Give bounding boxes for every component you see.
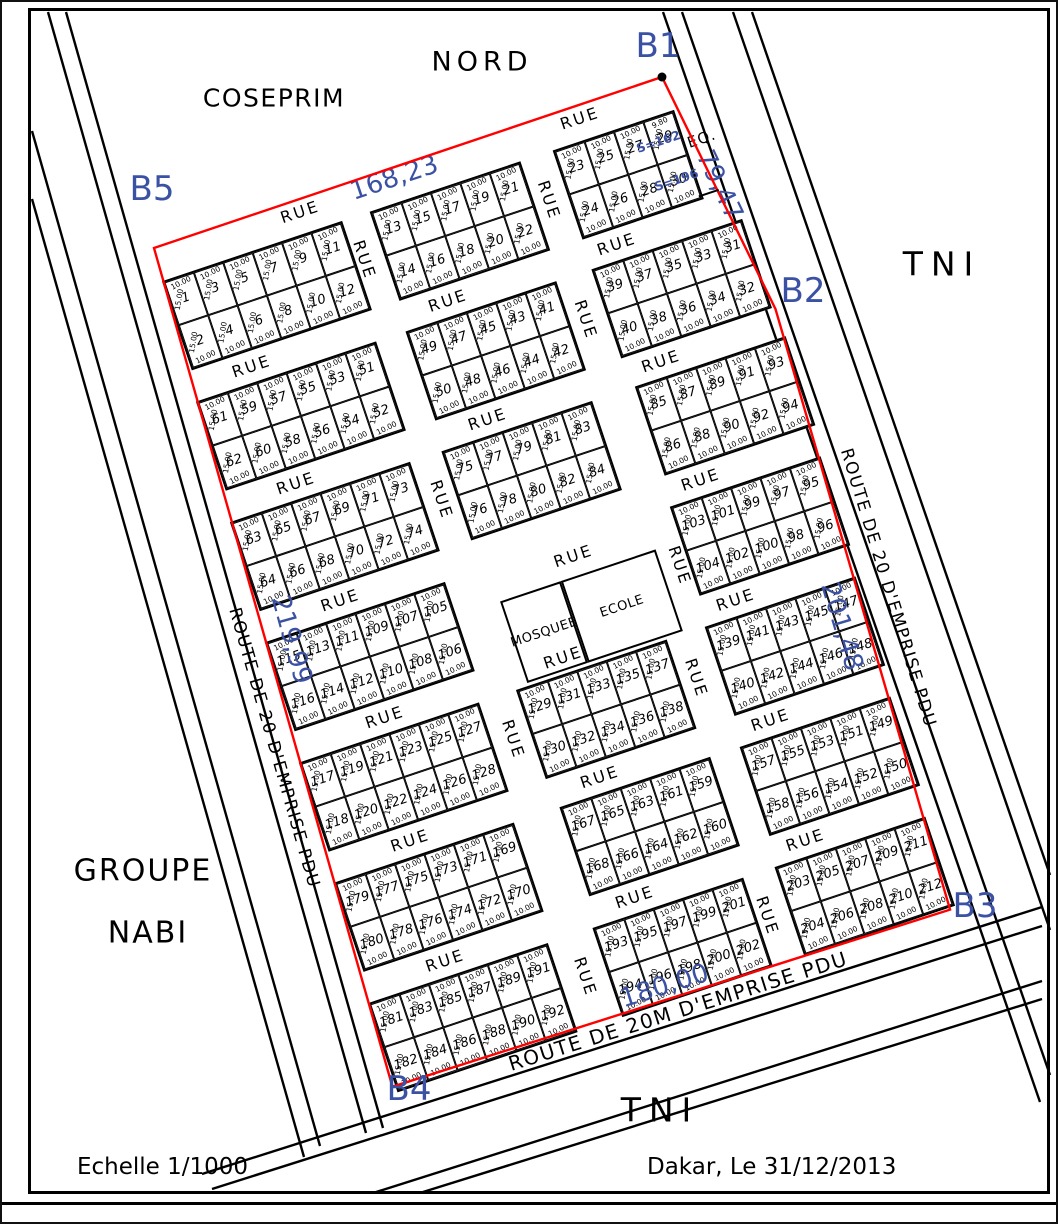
lot-depth-dim: 15.00 <box>770 484 781 507</box>
lot-depth-dim: 15.00 <box>470 189 481 212</box>
lot-depth-dim: 15.00 <box>644 837 655 860</box>
lot-depth-dim: 15.00 <box>571 814 582 837</box>
lot-depth-dim: 15.00 <box>404 870 415 893</box>
lot-depth-dim: 15.00 <box>691 247 702 270</box>
lot-depth-dim: 15.00 <box>647 394 658 417</box>
lot-depth-dim: 15.00 <box>630 795 641 818</box>
lot-depth-dim: 15.00 <box>696 557 707 580</box>
lot-depth-dim: 15.00 <box>781 744 792 767</box>
lot-depth-dim: 15.00 <box>786 874 797 897</box>
lot-depth-dim: 15.00 <box>256 572 267 595</box>
lot-depth-dim: 15.00 <box>468 981 479 1004</box>
lot-depth-dim: 15.00 <box>617 319 628 342</box>
lot-depth-dim: 15.00 <box>735 364 746 387</box>
lot-depth-dim: 15.00 <box>354 803 365 826</box>
lot-depth-dim: 15.00 <box>810 734 821 757</box>
frame-bottom-line <box>2 1202 1058 1205</box>
lot-depth-dim: 15.00 <box>731 677 742 700</box>
lot-depth-dim: 15.00 <box>511 1014 522 1037</box>
lot-depth-dim: 15.00 <box>482 1024 493 1047</box>
lot-depth-dim: 15.00 <box>676 299 687 322</box>
lot-depth-dim: 15.00 <box>542 740 553 763</box>
lot-depth-dim: 15.00 <box>645 658 656 681</box>
lot-depth-dim: 15.00 <box>285 562 296 585</box>
lot-depth-dim: 15.00 <box>266 389 277 412</box>
lot-depth-dim: 15.00 <box>736 939 747 962</box>
lot-depth-dim: 15.00 <box>790 657 801 680</box>
lot-depth-dim: 15.00 <box>484 232 495 255</box>
lot-depth-dim: 15.00 <box>541 1004 552 1027</box>
lot-depth-dim: 15.00 <box>271 519 282 542</box>
lot-depth-dim: 15.00 <box>615 847 626 870</box>
lot-depth-dim: 15.00 <box>425 252 436 275</box>
lot-depth-dim: 15.00 <box>616 668 627 691</box>
lot-depth-dim: 15.00 <box>379 1010 390 1033</box>
lot-depth-dim: 15.00 <box>647 309 658 332</box>
lot-depth-dim: 15.00 <box>384 793 395 816</box>
lot-depth-dim: 15.00 <box>571 419 582 442</box>
lot-depth-dim: 15.00 <box>764 354 775 377</box>
lot-depth-dim: 15.00 <box>394 1053 405 1076</box>
lot-depth-dim: 15.00 <box>682 514 693 537</box>
lot-depth-dim: 15.00 <box>222 451 233 474</box>
lot-depth-dim: 15.00 <box>660 700 671 723</box>
lot-depth-dim: 15.00 <box>766 797 777 820</box>
lot-depth-dim: 15.00 <box>594 148 605 171</box>
lot-depth-dim: 15.00 <box>247 311 258 334</box>
lot-depth-dim: 15.00 <box>689 775 700 798</box>
lot-depth-dim: 15.00 <box>447 329 458 352</box>
lot-depth-dim: 15.00 <box>345 890 356 913</box>
lot-depth-dim: 15.00 <box>321 239 332 262</box>
lot-depth-dim: 15.00 <box>676 384 687 407</box>
lot-depth-dim: 15.00 <box>799 475 810 498</box>
lot-depth-dim: 15.00 <box>690 427 701 450</box>
lot-depth-dim: 15.00 <box>819 647 830 670</box>
lot-depth-dim: 15.00 <box>634 925 645 948</box>
lot-depth-dim: 15.00 <box>805 604 816 627</box>
lot-depth-dim: 15.00 <box>579 200 590 223</box>
lot-depth-dim: 15.00 <box>417 339 428 362</box>
lot-depth-dim: 15.00 <box>637 181 648 204</box>
lot-depth-dim: 15.00 <box>340 412 351 435</box>
lot-depth-dim: 15.00 <box>330 500 341 523</box>
lot-depth-dim: 15.00 <box>661 436 672 459</box>
lot-depth-dim: 15.00 <box>442 773 453 796</box>
lot-depth-dim: 15.00 <box>359 490 370 513</box>
lot-depth-dim: 15.00 <box>440 199 451 222</box>
lot-depth-dim: 15.00 <box>499 180 510 203</box>
lot-depth-dim: 15.00 <box>325 369 336 392</box>
lot-depth-dim: 15.00 <box>722 896 733 919</box>
lot-depth-dim: 15.00 <box>233 269 244 292</box>
lot-depth-dim: 15.00 <box>291 249 302 272</box>
lot-depth-dim: 15.00 <box>492 841 503 864</box>
lot-depth-dim: 15.00 <box>692 906 703 929</box>
lot-depth-dim: 15.00 <box>725 547 736 570</box>
lot-depth-dim: 15.00 <box>528 697 539 720</box>
lot-depth-dim: 15.00 <box>458 721 469 744</box>
lot-depth-dim: 15.00 <box>706 290 717 313</box>
lot-depth-dim: 15.00 <box>601 720 612 743</box>
lot-depth-dim: 15.00 <box>291 692 302 715</box>
lot-depth-dim: 15.00 <box>889 887 900 910</box>
plan-sheet: 110.0015.00310.0015.00510.0015.00710.001… <box>0 0 1058 1224</box>
lot-depth-dim: 15.00 <box>507 883 518 906</box>
lot-depth-dim: 15.00 <box>497 491 508 514</box>
lot-depth-dim: 15.00 <box>453 1033 464 1056</box>
lot-depth-dim: 15.00 <box>564 158 575 181</box>
lot-depth-dim: 15.00 <box>840 725 851 748</box>
lot-depth-dim: 15.00 <box>795 787 806 810</box>
lot-depth-dim: 15.00 <box>251 442 262 465</box>
lot-depth-dim: 15.00 <box>749 407 760 430</box>
lot-depth-dim: 15.00 <box>526 961 537 984</box>
lot-depth-dim: 15.00 <box>477 893 488 916</box>
lot-depth-dim: 15.00 <box>541 429 552 452</box>
lot-depth-dim: 15.00 <box>587 677 598 700</box>
lot-depth-dim: 15.00 <box>396 262 407 285</box>
lot-depth-dim: 15.00 <box>813 517 824 540</box>
lot-depth-dim: 15.00 <box>409 1001 420 1024</box>
lot-depth-dim: 15.00 <box>904 835 915 858</box>
lot-depth-dim: 15.00 <box>335 282 346 305</box>
lot-depth-dim: 15.00 <box>760 667 771 690</box>
lot-depth-dim: 15.00 <box>389 923 400 946</box>
lot-depth-dim: 15.00 <box>413 783 424 806</box>
lot-depth-dim: 15.00 <box>874 845 885 868</box>
lot-depth-dim: 15.00 <box>845 855 856 878</box>
lot-depth-dim: 15.00 <box>623 138 634 161</box>
lot-depth-dim: 15.00 <box>608 190 619 213</box>
lot-depth-dim: 15.00 <box>310 422 321 445</box>
lot-depth-dim: 15.00 <box>374 533 385 556</box>
lot-depth-dim: 15.00 <box>755 537 766 560</box>
lot-depth-dim: 15.00 <box>585 462 596 485</box>
lot-depth-dim: 15.00 <box>174 288 185 311</box>
lot-depth-dim: 15.00 <box>399 740 410 763</box>
lot-depth-dim: 15.00 <box>703 818 714 841</box>
lot-depth-dim: 15.00 <box>300 510 311 533</box>
lot-depth-dim: 15.00 <box>320 682 331 705</box>
lot-depth-dim: 15.00 <box>505 309 516 332</box>
lot-depth-dim: 15.00 <box>315 552 326 575</box>
lot-depth-dim: 15.00 <box>603 276 614 299</box>
lot-depth-dim: 15.00 <box>674 828 685 851</box>
lot-depth-dim: 15.00 <box>630 710 641 733</box>
lot-depth-dim: 15.00 <box>663 915 674 938</box>
lot-depth-dim: 15.00 <box>434 860 445 883</box>
lot-depth-dim: 15.00 <box>217 321 228 344</box>
lot-depth-dim: 15.00 <box>557 687 568 710</box>
lot-depth-dim: 15.00 <box>208 409 219 432</box>
lot-depth-dim: 15.00 <box>203 279 214 302</box>
lot-depth-dim: 15.00 <box>859 897 870 920</box>
lot-depth-dim: 15.00 <box>381 219 392 242</box>
lot-depth-dim: 15.00 <box>476 319 487 342</box>
lot-depth-dim: 15.00 <box>369 750 380 773</box>
lot-depth-dim: 15.00 <box>281 432 292 455</box>
lot-depth-dim: 15.00 <box>242 529 253 552</box>
lot-depth-dim: 15.00 <box>438 991 449 1014</box>
lot-depth-dim: 15.00 <box>883 757 894 780</box>
lot-depth-dim: 15.00 <box>535 299 546 322</box>
lot-depth-dim: 15.00 <box>824 777 835 800</box>
lot-depth-dim: 15.00 <box>335 630 346 653</box>
lot-depth-dim: 15.00 <box>448 903 459 926</box>
lot-depth-dim: 15.00 <box>716 634 727 657</box>
lot-depth-dim: 15.00 <box>556 472 567 495</box>
lot-depth-dim: 15.00 <box>454 242 465 265</box>
lot-depth-dim: 15.00 <box>461 372 472 395</box>
lot-depth-dim: 15.00 <box>188 331 199 354</box>
lot-depth-dim: 15.00 <box>751 754 762 777</box>
lot-depth-dim: 15.00 <box>325 812 336 835</box>
lot-depth-dim: 15.00 <box>311 770 322 793</box>
lot-depth-dim: 15.00 <box>340 760 351 783</box>
lot-depth-dim: 15.00 <box>720 417 731 440</box>
lot-depth-dim: 15.00 <box>428 730 439 753</box>
lot-depth-dim: 15.00 <box>296 379 307 402</box>
lot-depth-dim: 15.00 <box>423 1043 434 1066</box>
lot-depth-dim: 15.00 <box>775 614 786 637</box>
lot-depth-dim: 15.00 <box>472 763 483 786</box>
lot-depth-dim: 15.00 <box>424 600 435 623</box>
lot-depth-dim: 15.00 <box>411 209 422 232</box>
lot-depth-dim: 15.00 <box>659 785 670 808</box>
lot-depth-dim: 15.00 <box>601 805 612 828</box>
lot-depth-dim: 15.00 <box>918 878 929 901</box>
lot-depth-dim: 15.00 <box>467 501 478 524</box>
lot-depth-dim: 15.00 <box>735 280 746 303</box>
lot-depth-dim: 15.00 <box>453 458 464 481</box>
lot-depth-dim: 15.00 <box>869 715 880 738</box>
lot-depth-dim: 15.00 <box>705 374 716 397</box>
lot-depth-dim: 15.00 <box>379 663 390 686</box>
lot-depth-dim: 15.00 <box>369 402 380 425</box>
lot-depth-dim: 15.00 <box>816 864 827 887</box>
lot-depth-dim: 15.00 <box>513 222 524 245</box>
lot-depth-dim: 15.00 <box>830 907 841 930</box>
lot-depth-dim: 15.00 <box>262 259 273 282</box>
lot-depth-dim: 15.00 <box>365 620 376 643</box>
lot-depth-dim: 15.00 <box>344 542 355 565</box>
lot-depth-dim: 15.00 <box>438 643 449 666</box>
lot-depth-dim: 15.00 <box>801 917 812 940</box>
lot-depth-dim: 15.00 <box>662 257 673 280</box>
lot-depth-dim: 15.00 <box>306 292 317 315</box>
lot-depth-dim: 15.00 <box>707 948 718 971</box>
lot-depth-dim: 15.00 <box>497 971 508 994</box>
lot-depth-dim: 15.00 <box>778 397 789 420</box>
lot-depth-dim: 15.00 <box>432 381 443 404</box>
lot-depth-dim: 15.00 <box>276 302 287 325</box>
lot-depth-dim: 15.00 <box>585 857 596 880</box>
lot-depth-dim: 15.00 <box>854 767 865 790</box>
lot-depth-dim: 15.00 <box>350 672 361 695</box>
lot-depth-dim: 15.00 <box>408 653 419 676</box>
lot-depth-dim: 15.00 <box>604 935 615 958</box>
lot-depth-dim: 15.00 <box>463 851 474 874</box>
lot-depth-dim: 15.00 <box>483 449 494 472</box>
lot-depth-dim: 15.00 <box>490 362 501 385</box>
lot-depth-dim: 15.00 <box>571 730 582 753</box>
lot-depth-dim: 15.00 <box>237 399 248 422</box>
lot-depth-dim: 15.00 <box>784 527 795 550</box>
lot-depth-dim: 15.00 <box>633 267 644 290</box>
lot-depth-dim: 15.00 <box>721 237 732 260</box>
lot-depth-dim: 15.00 <box>520 352 531 375</box>
lot-depth-dim: 15.00 <box>526 481 537 504</box>
lot-depth-dim: 15.00 <box>711 504 722 527</box>
lot-depth-dim: 15.00 <box>746 624 757 647</box>
lot-depth-dim: 15.00 <box>394 610 405 633</box>
lot-depth-dim: 15.00 <box>419 913 430 936</box>
lot-depth-dim: 15.00 <box>740 494 751 517</box>
lot-depth-dim: 15.00 <box>375 880 386 903</box>
lot-depth-dim: 15.00 <box>389 480 400 503</box>
lot-depth-dim: 15.00 <box>549 342 560 365</box>
lot-depth-dim: 15.00 <box>355 360 366 383</box>
lot-depth-dim: 15.00 <box>403 523 414 546</box>
lot-depth-dim: 15.00 <box>512 439 523 462</box>
lot-depth-dim: 15.00 <box>360 933 371 956</box>
